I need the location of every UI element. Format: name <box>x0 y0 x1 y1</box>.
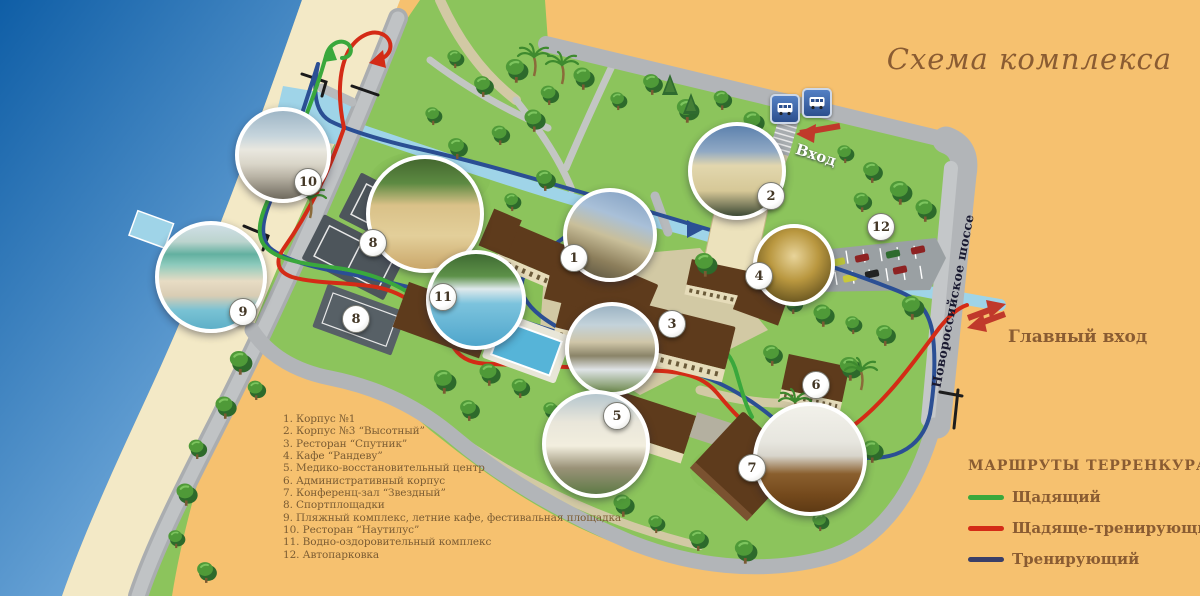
routes-legend-row: Щадящий <box>968 488 1200 506</box>
marker-6: 6 <box>802 371 830 399</box>
marker-11: 11 <box>429 283 457 311</box>
route-label: Щадяще-тренирующий <box>1012 519 1200 537</box>
legend-item: 3. Ресторан “Спутник” <box>283 438 621 450</box>
photo-circle-conference-hall <box>753 402 867 516</box>
route-label: Щадящий <box>1012 488 1101 506</box>
legend-item: 5. Медико-восстановительный центр <box>283 462 621 474</box>
legend-item: 4. Кафе “Рандеву” <box>283 450 621 462</box>
bus-stop-icon <box>802 88 832 118</box>
main-entrance-label: Главный вход <box>1008 327 1147 347</box>
legend-list: 1. Корпус №1 2. Корпус №3 “Высотный” 3. … <box>283 413 621 561</box>
marker-2: 2 <box>757 182 785 210</box>
legend-item: 7. Конференц-зал “Звездный” <box>283 487 621 499</box>
route-label: Тренирующий <box>1012 550 1139 568</box>
photo-circle-restaurant-sputnik <box>565 302 659 396</box>
legend-item: 8. Спортплощадки <box>283 499 621 511</box>
marker-4: 4 <box>745 262 773 290</box>
legend-item: 11. Водно-оздоровительный комплекс <box>283 536 621 548</box>
routes-legend: МАРШРУТЫ ТЕРРЕНКУРА Щадящий Щадяще-трени… <box>968 458 1200 581</box>
legend-item: 9. Пляжный комплекс, летние кафе, фестив… <box>283 512 621 524</box>
routes-legend-row: Щадяще-тренирующий <box>968 519 1200 537</box>
resort-complex-map: 1 2 3 4 5 6 7 8 8 9 10 11 12 Схема компл… <box>0 0 1200 596</box>
legend-item: 12. Автопарковка <box>283 549 621 561</box>
page-title: Схема комплекса <box>887 42 1172 76</box>
route-swatch-red <box>968 526 1004 531</box>
routes-legend-row: Тренирующий <box>968 550 1200 568</box>
route-swatch-blue <box>968 557 1004 562</box>
marker-1: 1 <box>560 244 588 272</box>
legend-item: 6. Административный корпус <box>283 475 621 487</box>
marker-3: 3 <box>658 310 686 338</box>
legend-item: 10. Ресторан “Наутилус” <box>283 524 621 536</box>
legend-item: 1. Корпус №1 <box>283 413 621 425</box>
marker-12: 12 <box>867 213 895 241</box>
legend-item: 2. Корпус №3 “Высотный” <box>283 425 621 437</box>
routes-legend-title: МАРШРУТЫ ТЕРРЕНКУРА <box>968 458 1200 474</box>
marker-8: 8 <box>359 229 387 257</box>
marker-7: 7 <box>738 454 766 482</box>
marker-9: 9 <box>229 298 257 326</box>
bus-stop-icon <box>770 94 800 124</box>
route-swatch-green <box>968 495 1004 500</box>
marker-8b: 8 <box>342 305 370 333</box>
marker-10: 10 <box>294 168 322 196</box>
